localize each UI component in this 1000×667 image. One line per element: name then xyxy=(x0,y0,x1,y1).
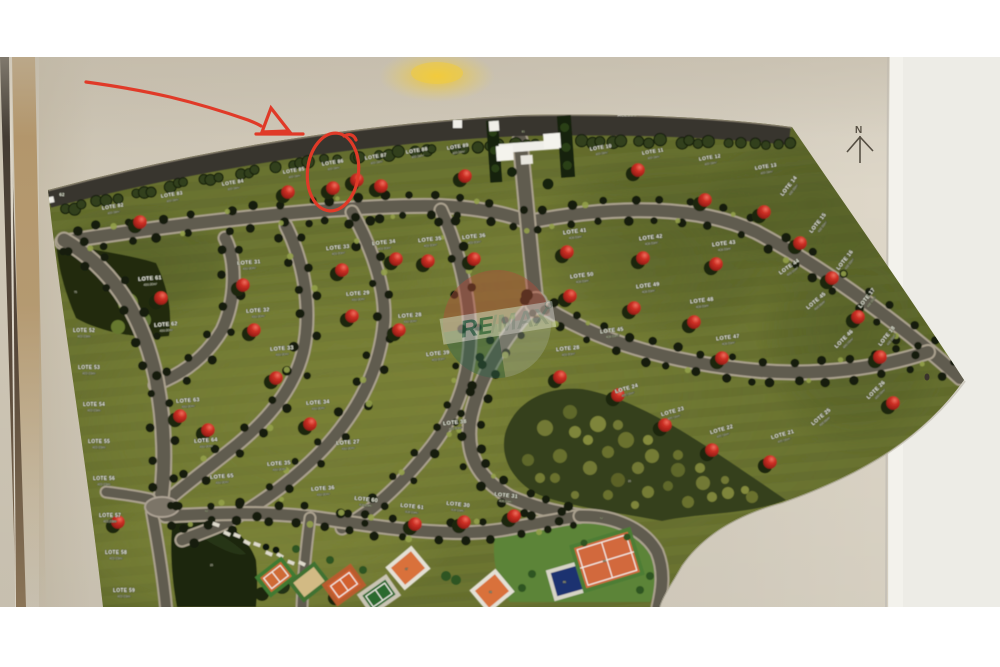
svg-text:LOTE 57: LOTE 57 xyxy=(99,513,121,519)
svg-text:400,00m²: 400,00m² xyxy=(97,482,110,486)
svg-text:LOTE 55: LOTE 55 xyxy=(88,439,110,445)
svg-text:LOTE 52: LOTE 52 xyxy=(73,328,95,334)
svg-text:400,00m²: 400,00m² xyxy=(87,408,100,412)
svg-text:LOTE 53: LOTE 53 xyxy=(78,365,100,371)
svg-text:LOTE 58: LOTE 58 xyxy=(105,550,127,556)
svg-text:LOTE 59: LOTE 59 xyxy=(113,588,135,594)
svg-text:N: N xyxy=(855,125,862,136)
svg-text:400,00m²: 400,00m² xyxy=(82,371,95,375)
svg-text:LOTE 54: LOTE 54 xyxy=(83,402,105,408)
svg-text:62: 62 xyxy=(59,192,65,197)
svg-text:400,00m²: 400,00m² xyxy=(77,334,90,338)
svg-text:400,00m²: 400,00m² xyxy=(92,445,105,449)
svg-text:400,00m²: 400,00m² xyxy=(117,594,130,598)
svg-text:400,00m²: 400,00m² xyxy=(103,519,116,523)
svg-text:LOTE 56: LOTE 56 xyxy=(93,476,115,482)
svg-text:400,00m²: 400,00m² xyxy=(109,556,122,560)
